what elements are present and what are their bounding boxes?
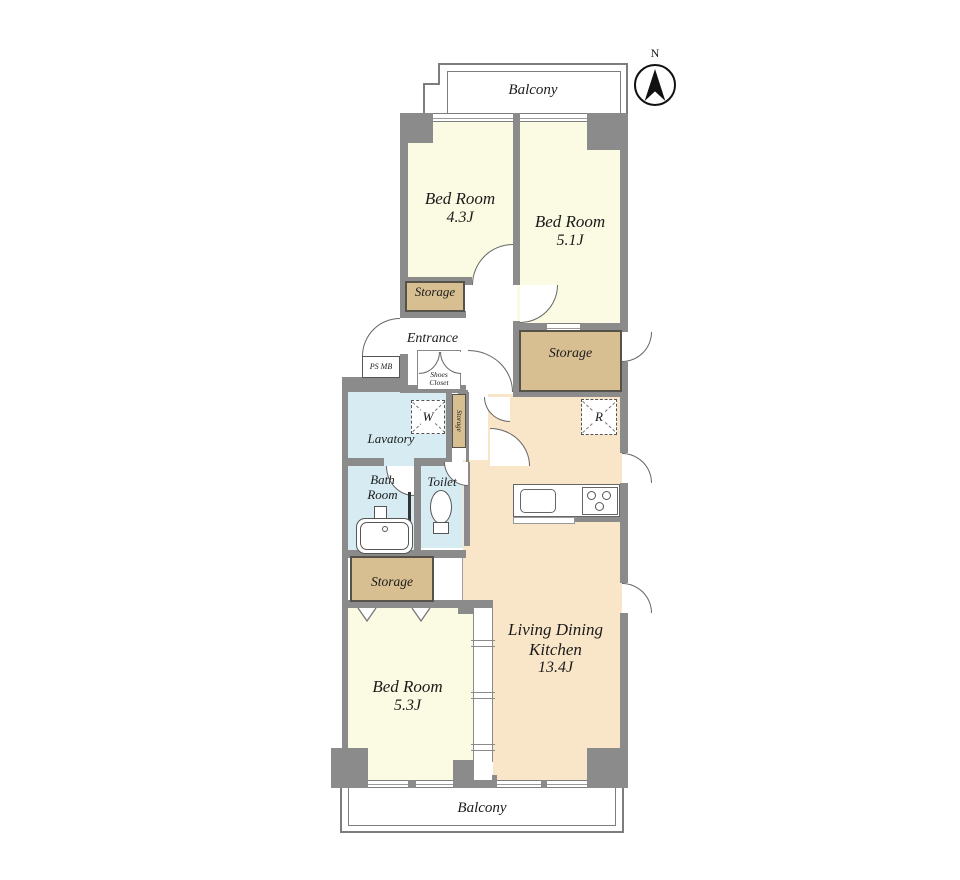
partition-tick	[471, 698, 495, 699]
closet-chevron-icon	[357, 607, 377, 623]
window	[433, 113, 513, 122]
storage-right-label: Storage	[519, 346, 622, 362]
wall-segment	[408, 780, 416, 788]
partition-tick	[471, 692, 495, 693]
ldk-right-door-arc	[622, 453, 652, 483]
service-nook	[433, 558, 463, 604]
shoes-closet-label: Shoes Closet	[417, 371, 461, 388]
storage-bottom-left-label: Storage	[350, 574, 434, 590]
wall-segment	[331, 780, 369, 788]
bedroom-5-1j-label: Bed Room 5.1J	[515, 212, 625, 250]
ldk-right-door-arc	[622, 583, 652, 613]
ps-mb-box: PS MB	[362, 356, 400, 378]
fridge-label: R	[593, 409, 605, 425]
bath-counter	[374, 506, 387, 519]
window	[416, 780, 453, 788]
wall-segment	[466, 392, 469, 462]
stove-burner-icon	[602, 491, 611, 500]
ps-mb-label: PS MB	[370, 362, 392, 371]
hall-ldk-door-arc	[468, 350, 513, 392]
wall-segment	[342, 458, 384, 466]
storage-right-door-arc	[622, 332, 652, 362]
bath-room-label: Bath Room	[350, 473, 415, 503]
window	[547, 780, 587, 788]
bathtub-drain-icon	[382, 526, 388, 532]
entrance-label: Entrance	[395, 331, 470, 347]
wall-segment	[620, 483, 628, 583]
window	[368, 780, 408, 788]
balcony-top-label: Balcony	[438, 82, 628, 99]
wall-segment	[400, 311, 466, 318]
fridge-symbol: R	[581, 399, 617, 435]
window	[520, 113, 587, 122]
toilet-bowl-icon	[430, 490, 452, 524]
room-ldk	[463, 460, 624, 610]
storage-top-left-label: Storage	[405, 285, 465, 300]
washer-label: W	[421, 409, 436, 425]
washer-symbol: W	[411, 400, 445, 434]
counter-base	[513, 517, 575, 524]
stove-burner-icon	[595, 502, 604, 511]
wall-segment	[587, 748, 628, 788]
wall-segment	[587, 113, 628, 150]
floor-plan-page: { "palette": { "wall": "#8b8b8b", "bedro…	[0, 0, 960, 880]
wall-segment	[342, 377, 402, 392]
bedroom-4-3j-label: Bed Room 4.3J	[405, 189, 515, 227]
north-label: N	[648, 47, 662, 61]
lavatory-label: Lavatory	[345, 432, 437, 447]
storage-hall-small-label: Storage	[453, 397, 465, 445]
wall-segment	[513, 113, 520, 122]
closet-chevron-icon	[411, 607, 431, 623]
wall-segment	[414, 458, 446, 466]
sliding-partition-line	[473, 612, 474, 762]
wall-segment	[342, 392, 348, 788]
ldk-label: Living Dining Kitchen 13.4J	[478, 620, 633, 677]
kitchen-sink	[520, 489, 556, 513]
window	[497, 780, 541, 788]
toilet-base	[433, 522, 449, 534]
toilet-label: Toilet	[416, 475, 468, 490]
bedroom-5-3j-label: Bed Room 5.3J	[345, 677, 470, 715]
partition-tick	[471, 750, 495, 751]
stove-burner-icon	[587, 491, 596, 500]
partition-tick	[471, 744, 495, 745]
balcony-bottom-label: Balcony	[340, 800, 624, 817]
